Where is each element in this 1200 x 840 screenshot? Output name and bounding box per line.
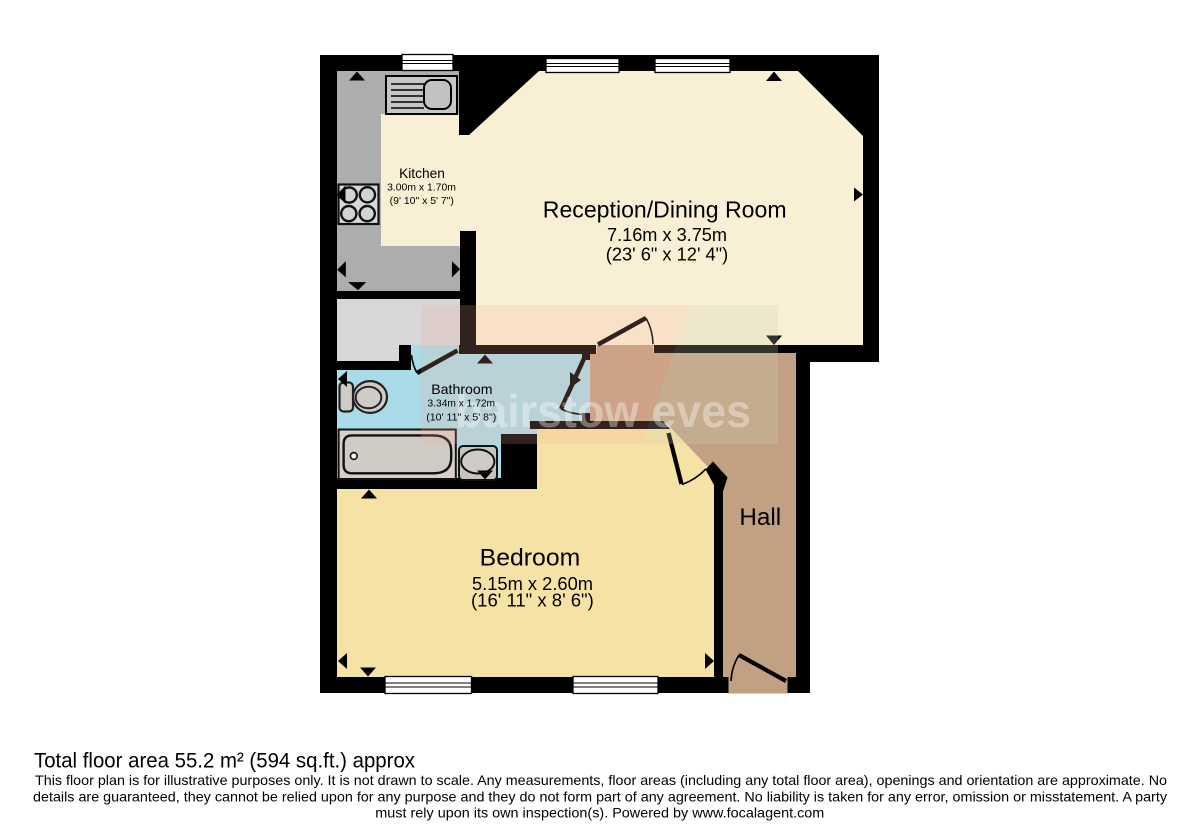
svg-text:Bedroom: Bedroom xyxy=(480,545,581,572)
svg-text:(10' 11" x 5' 8"): (10' 11" x 5' 8") xyxy=(426,413,496,424)
svg-text:3.00m x 1.70m: 3.00m x 1.70m xyxy=(387,183,456,194)
svg-text:Bathroom: Bathroom xyxy=(431,381,492,397)
svg-text:Kitchen: Kitchen xyxy=(399,165,445,181)
svg-text:must rely upon its own inspect: must rely upon its own inspection(s). Po… xyxy=(375,805,824,821)
svg-text:(16' 11" x 8' 6"): (16' 11" x 8' 6") xyxy=(471,591,594,611)
svg-text:details are guaranteed, they c: details are guaranteed, they cannot be r… xyxy=(33,789,1167,805)
svg-text:bairstow eves: bairstow eves xyxy=(455,385,751,437)
svg-text:Total floor area 55.2 m² (594: Total floor area 55.2 m² (594 sq.ft.) ap… xyxy=(34,750,415,773)
svg-text:7.16m x 3.75m: 7.16m x 3.75m xyxy=(607,225,727,245)
svg-text:3.34m x 1.72m: 3.34m x 1.72m xyxy=(428,399,496,410)
svg-text:Reception/Dining Room: Reception/Dining Room xyxy=(543,197,787,223)
svg-text:(9' 10" x 5' 7"): (9' 10" x 5' 7") xyxy=(390,196,454,207)
svg-text:Hall: Hall xyxy=(739,504,781,531)
svg-text:(23' 6" x 12' 4"): (23' 6" x 12' 4") xyxy=(606,245,729,265)
svg-text:This floor plan is for illustr: This floor plan is for illustrative purp… xyxy=(35,772,1167,788)
